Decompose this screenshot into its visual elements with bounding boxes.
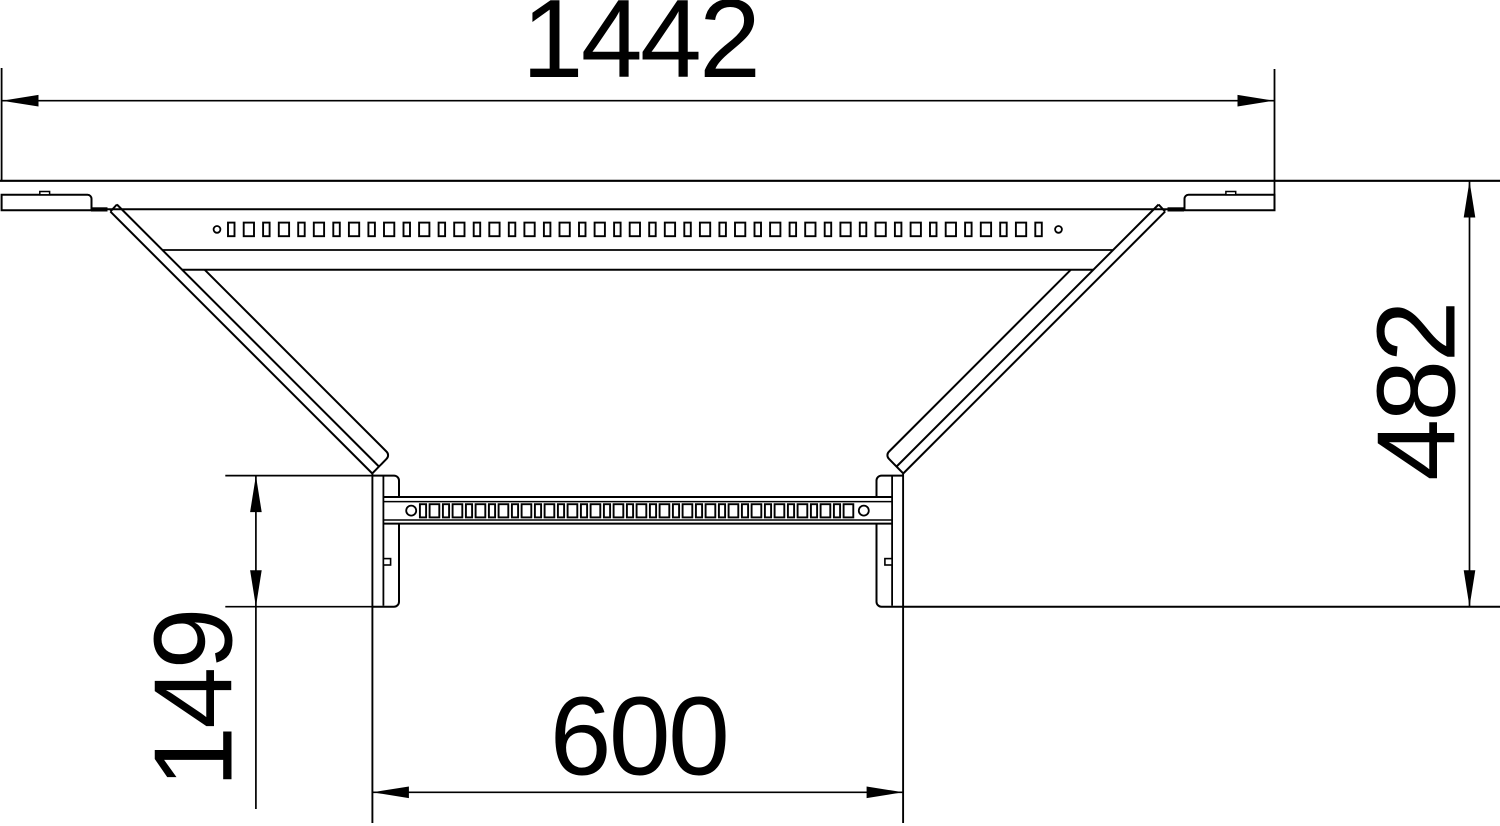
svg-text:1442: 1442 bbox=[522, 0, 759, 101]
svg-text:482: 482 bbox=[1354, 303, 1478, 480]
svg-text:149: 149 bbox=[131, 610, 255, 787]
svg-text:600: 600 bbox=[550, 675, 727, 799]
